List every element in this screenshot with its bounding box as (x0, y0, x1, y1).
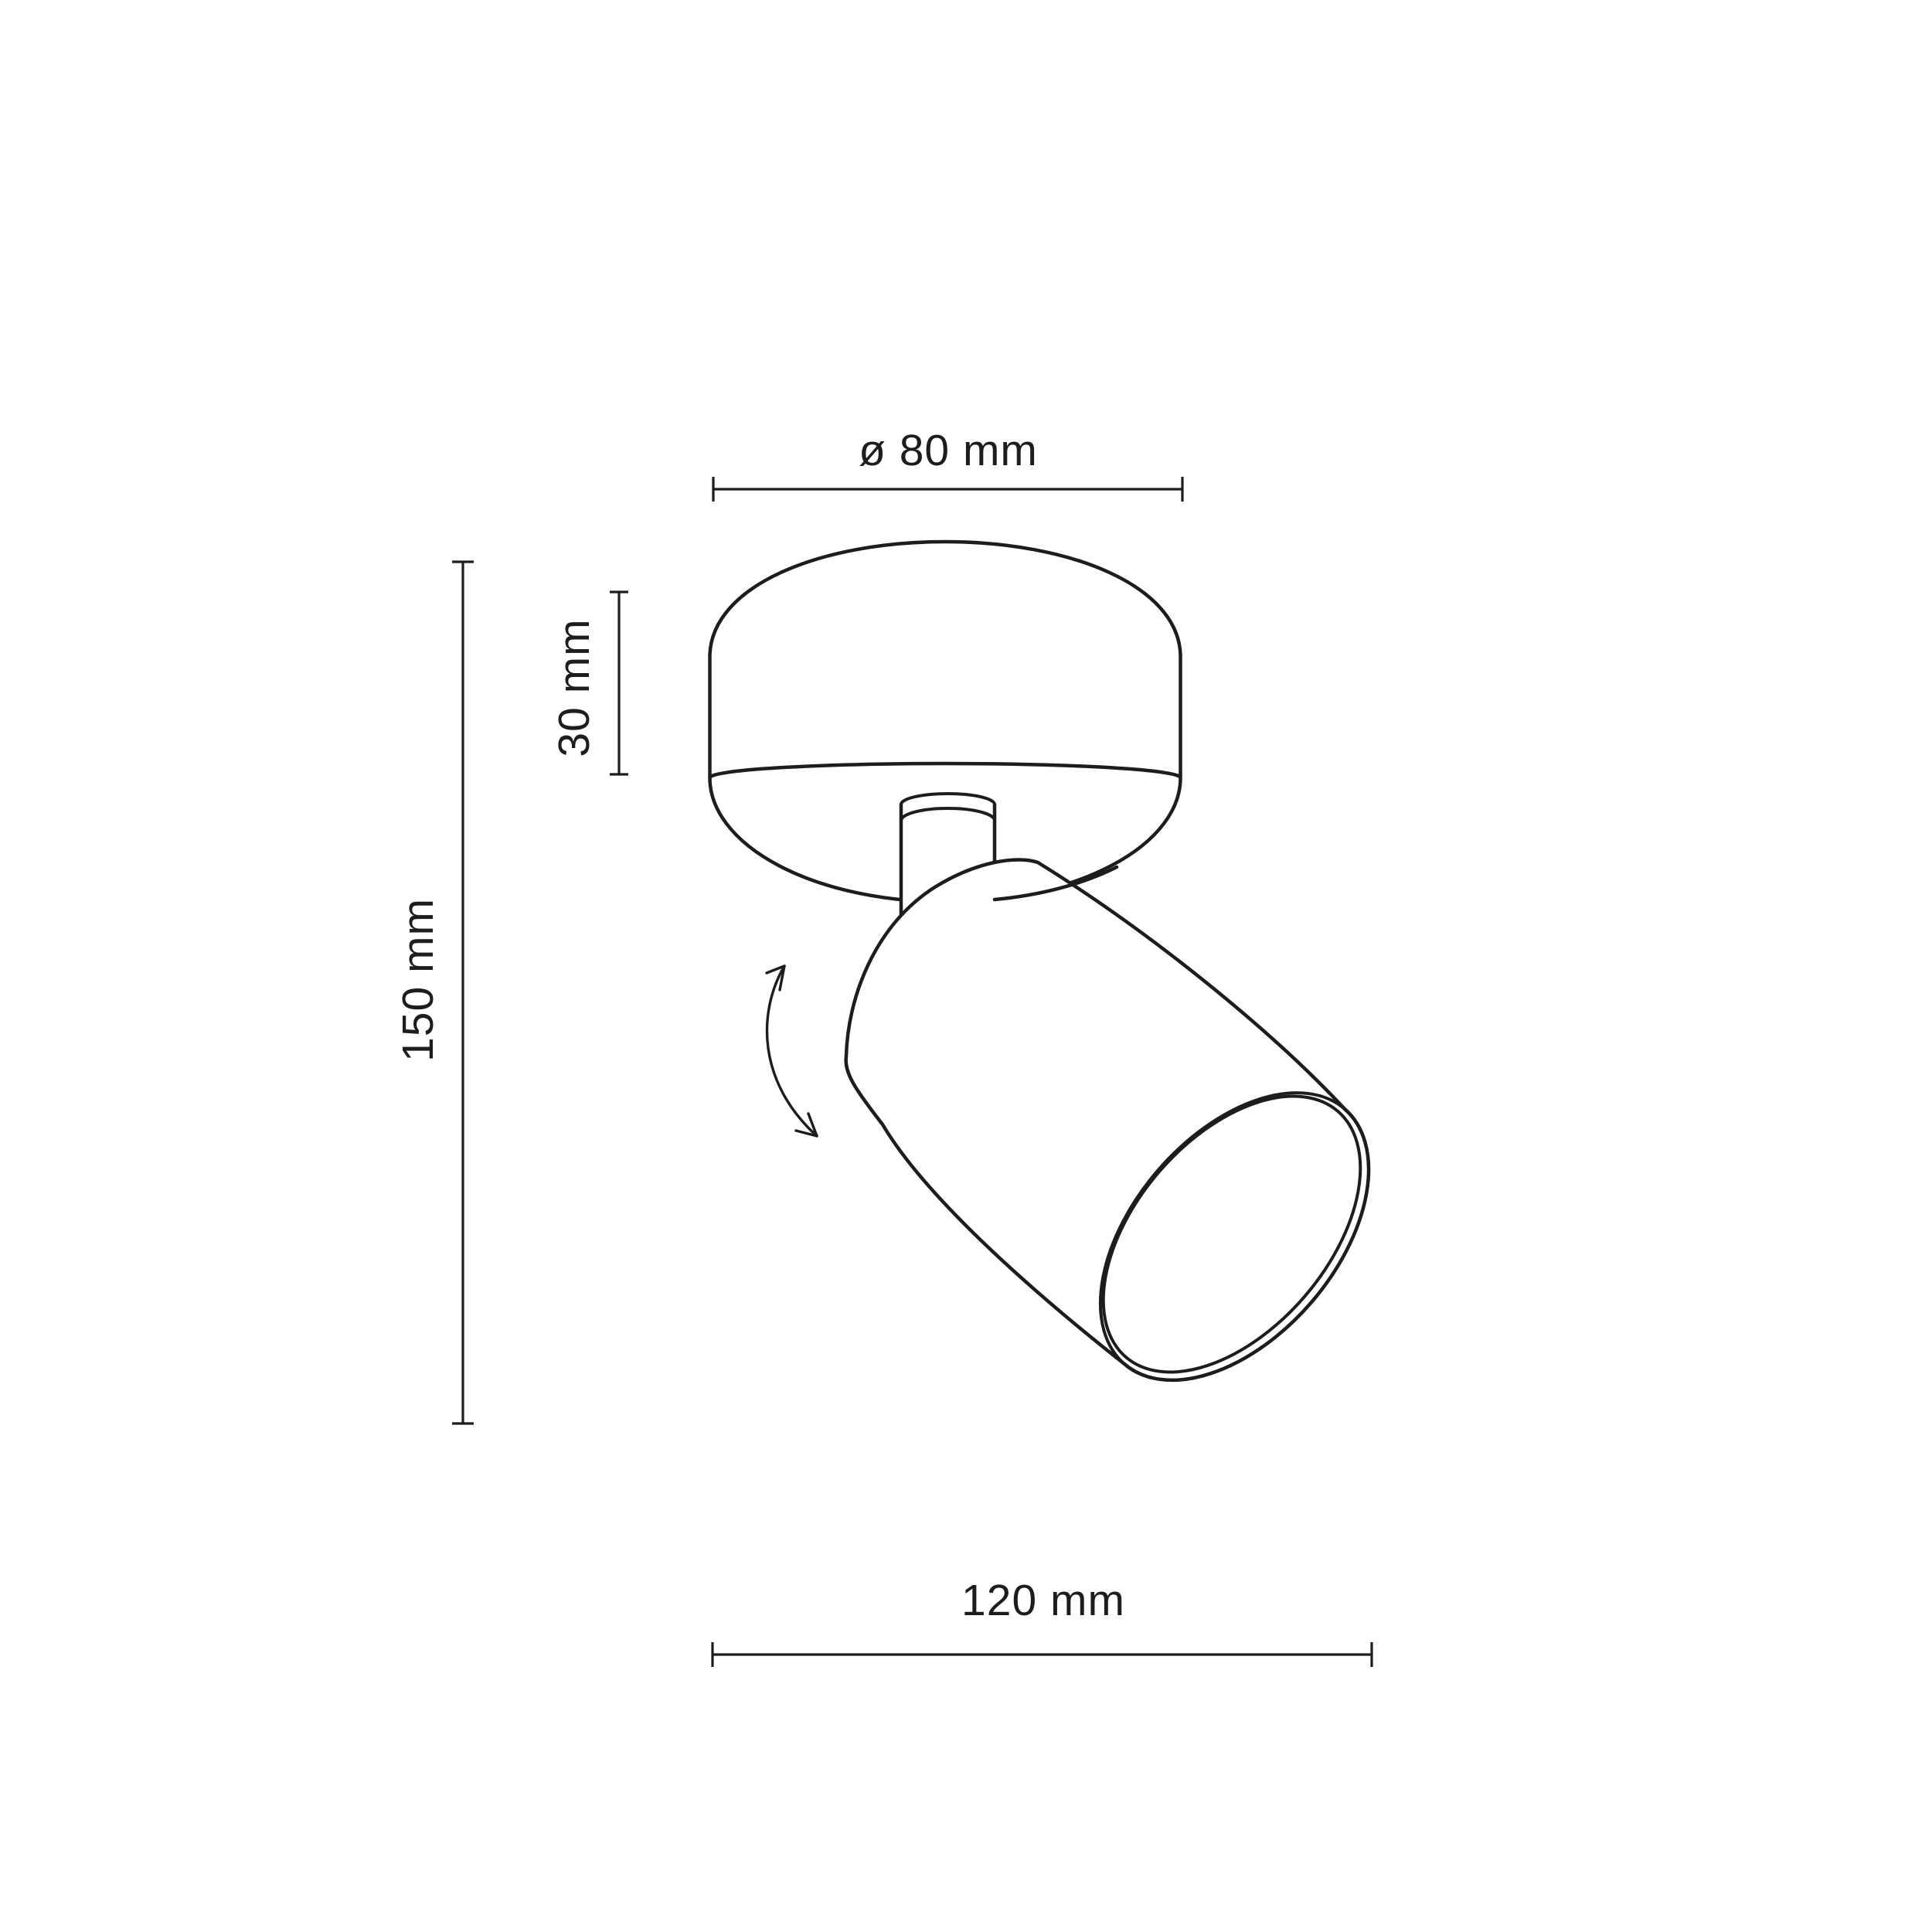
spotlight-dimension-diagram: ø 80 mm 30 mm 150 mm 120 mm (0, 0, 1932, 1932)
dimension-overall-height-line (452, 562, 474, 1423)
spot-head-body (846, 859, 1369, 1379)
technical-drawing-page: ø 80 mm 30 mm 150 mm 120 mm (0, 0, 1932, 1932)
dimension-overall-height-label: 150 mm (393, 898, 443, 1062)
dimension-diameter: ø 80 mm (713, 426, 1182, 502)
dimension-length-label: 120 mm (961, 1576, 1125, 1625)
dimension-base-height-label: 30 mm (549, 618, 599, 757)
dimension-overall-height: 150 mm (393, 562, 474, 1423)
canopy-outline (710, 542, 1181, 778)
dimension-length-line (713, 1642, 1372, 1667)
spot-head (846, 859, 1421, 1430)
dimension-base-height-line (610, 592, 628, 774)
dimension-diameter-label: ø 80 mm (859, 426, 1038, 475)
tilt-arrow-arc (767, 966, 817, 1136)
dimension-length: 120 mm (713, 1576, 1372, 1667)
tilt-arrow (767, 966, 817, 1136)
dimension-base-height: 30 mm (549, 592, 628, 774)
dimension-diameter-line (713, 477, 1182, 502)
